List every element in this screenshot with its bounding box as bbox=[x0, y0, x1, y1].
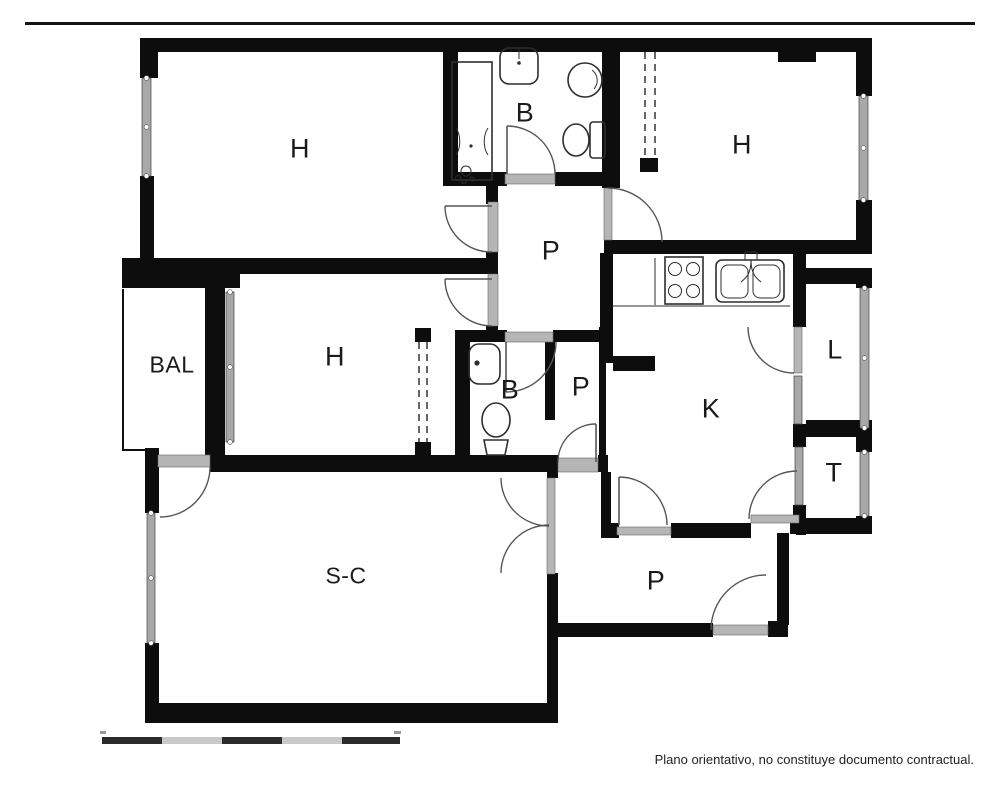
door-bedroom-topleft bbox=[445, 202, 498, 252]
door-bedroom-midleft bbox=[445, 274, 498, 326]
door-kitchen bbox=[617, 477, 671, 535]
toilet-icon-2 bbox=[482, 403, 510, 455]
room-label-passage-entry: P bbox=[647, 566, 666, 597]
room-label-kitchen: K bbox=[702, 394, 721, 425]
sink-icon-2 bbox=[469, 344, 500, 384]
room-label-bedroom-mid-left: H bbox=[325, 342, 345, 373]
door-passage-small bbox=[558, 424, 598, 472]
window-kitchen-toilet bbox=[795, 447, 803, 505]
washbasin-icon bbox=[568, 63, 602, 97]
room-label-toilet-room: T bbox=[826, 458, 843, 489]
room-label-balcony: BAL bbox=[150, 352, 195, 379]
window-toilet-room bbox=[860, 450, 869, 519]
window-kitchen-gallery bbox=[794, 376, 802, 424]
door-bedroom-topright bbox=[604, 188, 662, 242]
stove-icon bbox=[665, 257, 703, 304]
scale-tick-right bbox=[394, 731, 401, 734]
window-bedroom-midleft bbox=[226, 290, 234, 445]
door-bathroom-top bbox=[505, 126, 555, 184]
door-balcony bbox=[158, 455, 210, 517]
window-living bbox=[147, 511, 155, 646]
room-label-bedroom-top-right: H bbox=[732, 130, 752, 161]
double-door-living bbox=[501, 478, 555, 574]
room-label-passage-small: P bbox=[572, 372, 591, 403]
disclaimer-text: Plano orientativo, no constituye documen… bbox=[655, 752, 974, 767]
sink-icon bbox=[500, 48, 538, 84]
door-entry bbox=[711, 575, 768, 635]
window-bedroom-topleft bbox=[142, 76, 151, 179]
wardrobe-bedroom-midleft bbox=[419, 342, 427, 442]
wardrobe-bedroom-topright bbox=[645, 52, 655, 160]
room-label-passage-main: P bbox=[542, 236, 561, 267]
kitchen-sink-icon bbox=[716, 252, 784, 302]
room-label-gallery: L bbox=[827, 335, 843, 366]
door-kitchen-2 bbox=[749, 471, 799, 523]
room-label-bathroom-mid: B bbox=[501, 375, 520, 406]
room-label-bathroom-top: B bbox=[516, 98, 535, 129]
room-label-bedroom-top-left: H bbox=[290, 134, 310, 165]
window-bedroom-topright bbox=[859, 94, 868, 203]
scale-tick-left bbox=[100, 731, 106, 734]
page-border-line bbox=[25, 22, 975, 25]
room-label-living-dining: S-C bbox=[325, 563, 366, 590]
doors bbox=[158, 126, 802, 635]
floor-plan-page: H B H P BAL H B P K L T S-C P Plano orie… bbox=[0, 0, 1000, 800]
window-gallery bbox=[860, 286, 869, 431]
toilet-icon bbox=[563, 122, 605, 158]
balcony-outline bbox=[123, 289, 145, 450]
door-gallery bbox=[748, 327, 802, 373]
scale-bar bbox=[100, 731, 401, 744]
